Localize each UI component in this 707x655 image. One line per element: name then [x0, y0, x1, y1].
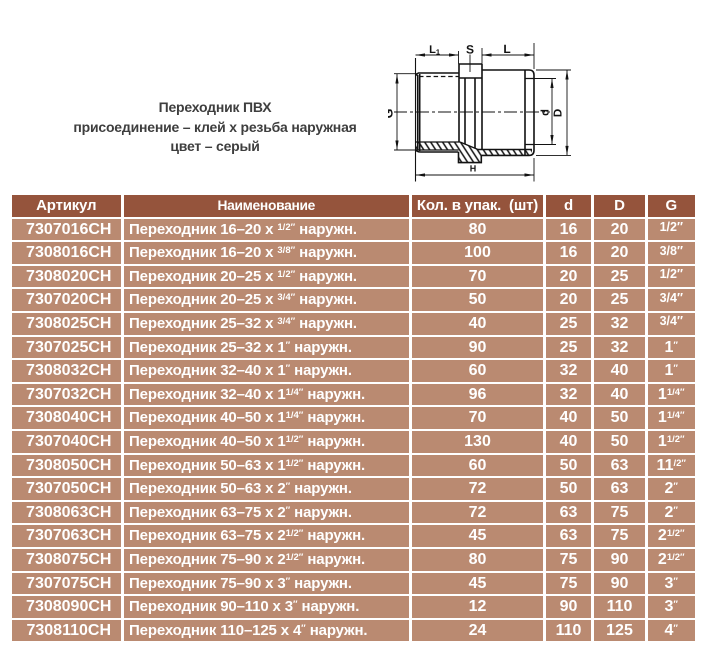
svg-text:L: L: [503, 42, 510, 56]
svg-text:G: G: [388, 109, 396, 119]
svg-text:H: H: [470, 164, 477, 174]
svg-text:S: S: [466, 43, 474, 57]
svg-text:D: D: [553, 109, 565, 117]
svg-text:1: 1: [436, 48, 440, 57]
svg-text:d: d: [540, 109, 552, 116]
